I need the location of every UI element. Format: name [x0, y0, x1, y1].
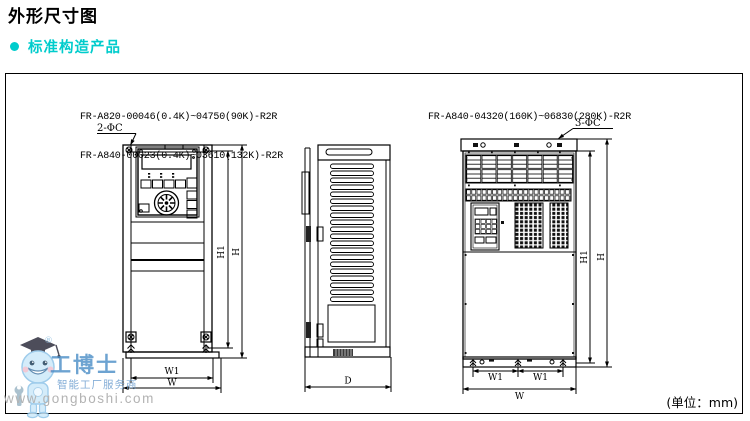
dim-label-w1: W1	[488, 373, 503, 383]
bullet-icon	[10, 42, 19, 51]
fixing-arrow-icon	[560, 360, 566, 367]
front-view-large-drawing: 3-ΦC W1 W1 W H1 H	[455, 110, 620, 405]
dim-label-h1: H1	[580, 250, 590, 264]
watermark-tagline: 智能工厂服务商	[57, 377, 138, 392]
display-screen	[142, 155, 191, 169]
dim-label-3-phi-c: 3-ΦC	[575, 118, 601, 129]
led-indicators	[148, 173, 174, 178]
unit-note: (单位：mm)	[590, 392, 738, 411]
section-header: 标准构造产品	[10, 36, 121, 57]
watermark-url: www.gongboshi.com	[4, 391, 155, 406]
louver-column	[550, 203, 568, 248]
front-view-small-drawing: 2-ΦC W1 W H1 H	[95, 115, 255, 405]
mounting-hole-icon	[201, 332, 211, 342]
watermark-brand: 工博士	[50, 349, 119, 379]
dim-label-w: W	[167, 379, 177, 389]
louver-column	[515, 203, 543, 248]
dial-icon	[155, 191, 179, 215]
dim-label-h: H	[232, 248, 242, 256]
fixing-arrow-icon	[470, 360, 476, 367]
dim-label-w: W	[515, 392, 525, 402]
heatsink-fins	[330, 163, 374, 303]
section-title: 标准构造产品	[28, 36, 121, 57]
side-view-drawing: D	[295, 140, 405, 395]
operation-panel	[136, 147, 199, 218]
page-title: 外形尺寸图	[8, 2, 98, 27]
dim-label-w1: W1	[533, 373, 548, 383]
fixing-arrow-icon	[515, 360, 521, 367]
dim-label-h: H	[597, 253, 607, 261]
top-vent-slot	[326, 149, 372, 155]
display-screen	[475, 208, 488, 215]
keypad-buttons	[139, 178, 197, 218]
dim-label-d: D	[344, 377, 351, 387]
mounting-hole-icon	[473, 143, 562, 147]
mounting-hole-icon	[126, 332, 136, 342]
operation-panel	[471, 203, 504, 250]
registered-mark: ®	[44, 336, 53, 346]
side-cover	[328, 305, 375, 342]
dim-label-h1: H1	[217, 245, 227, 259]
dim-label-2-phi-c: 2-ΦC	[97, 123, 123, 134]
dim-label-w1: W1	[165, 367, 180, 377]
base-grill	[333, 349, 353, 356]
